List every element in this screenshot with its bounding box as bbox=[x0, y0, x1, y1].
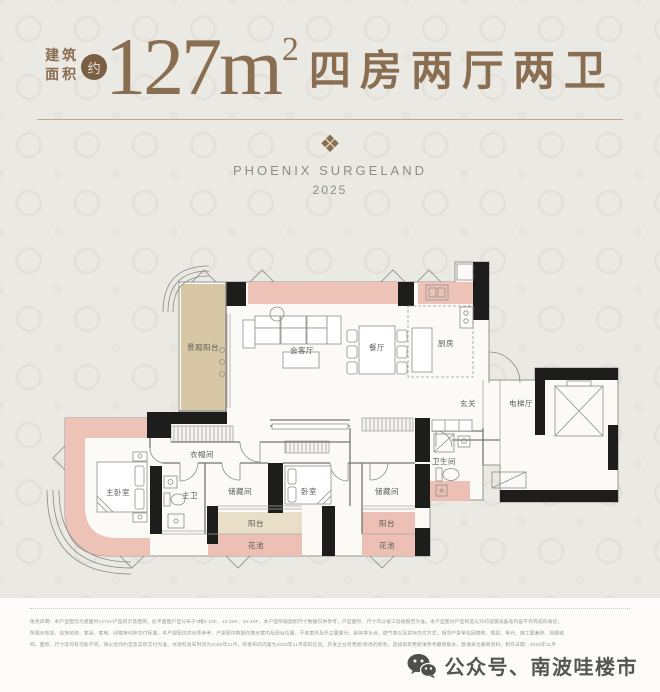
area-label-top: 建筑 bbox=[45, 48, 79, 67]
room-label-elevator-hall: 电梯厅 bbox=[509, 398, 533, 408]
room-label-master-bedroom: 主卧室 bbox=[106, 487, 130, 497]
brand-name: PHOENIX SURGELAND bbox=[233, 163, 427, 178]
disclaimer-line-2: 所展示软装、装饰装修、家具、家电、绿植等均非交付标准，本户型图仅供示意参考，户型… bbox=[30, 628, 620, 640]
room-label-balcony-right: 阳台 bbox=[379, 518, 395, 528]
area-number: 127m bbox=[105, 21, 280, 112]
footer-account-label: 公众号、南波哇楼市 bbox=[445, 651, 639, 680]
room-label-flower-bed-right: 花池 bbox=[379, 540, 395, 550]
room-label-flower-bed-left: 花池 bbox=[248, 540, 264, 550]
room-label-balcony-left: 阳台 bbox=[248, 518, 264, 528]
area-label-bottom: 面积 bbox=[45, 67, 79, 86]
disclaimer-line-1: 免责声明：本户型图仅为建面约127m²户型的示意图例，此平面图户型分布于3幢2-… bbox=[30, 616, 620, 628]
room-label-dining-room: 餐厅 bbox=[369, 343, 385, 352]
approx-badge: 约 bbox=[81, 54, 107, 80]
area-value: 127m2 bbox=[105, 26, 297, 108]
room-label-bathroom: 卫生间 bbox=[432, 456, 456, 466]
disclaimer-line-3: 构、面积、尺寸等均有可能不同，请以合同约定及实际交付为准。本资料发布时间为202… bbox=[30, 639, 620, 651]
room-label-living-room: 会客厅 bbox=[290, 345, 314, 355]
diamond-logo-icon: ❖ bbox=[319, 133, 341, 157]
header-divider bbox=[37, 119, 623, 120]
room-label-storage-right: 储藏间 bbox=[375, 486, 399, 496]
room-label-master-bathroom: 主卫 bbox=[182, 490, 198, 500]
page: 建筑 面积 约 127m2 四房两厅两卫 ❖ PHOENIX SURGELAND… bbox=[0, 0, 660, 692]
room-label-landscape-balcony: 景观阳台 bbox=[187, 342, 219, 352]
brand-year: 2025 bbox=[313, 183, 348, 197]
room-label-bedroom: 卧室 bbox=[301, 486, 317, 496]
rooms-text: 四房两厅两卫 bbox=[309, 37, 615, 98]
master-bed bbox=[97, 452, 147, 522]
bedroom-bed bbox=[285, 466, 331, 504]
brand-block: ❖ PHOENIX SURGELAND 2025 bbox=[0, 133, 660, 197]
area-label: 建筑 面积 bbox=[45, 48, 79, 86]
room-label-cloakroom: 衣帽间 bbox=[190, 449, 214, 459]
floorplan: 景观阳台 会客厅 餐厅 厨房 玄关 电梯厅 衣帽间 主卧室 主卫 储藏间 卧室 … bbox=[40, 250, 620, 610]
room-label-storage-left: 储藏间 bbox=[228, 486, 252, 496]
area-exponent: 2 bbox=[282, 31, 299, 68]
room-label-foyer: 玄关 bbox=[460, 398, 476, 408]
wechat-icon bbox=[407, 653, 437, 679]
room-label-kitchen: 厨房 bbox=[438, 338, 454, 348]
foyer-cabinet bbox=[432, 420, 472, 431]
header: 建筑 面积 约 127m2 四房两厅两卫 bbox=[0, 26, 660, 108]
footer: 公众号、南波哇楼市 bbox=[407, 651, 639, 680]
